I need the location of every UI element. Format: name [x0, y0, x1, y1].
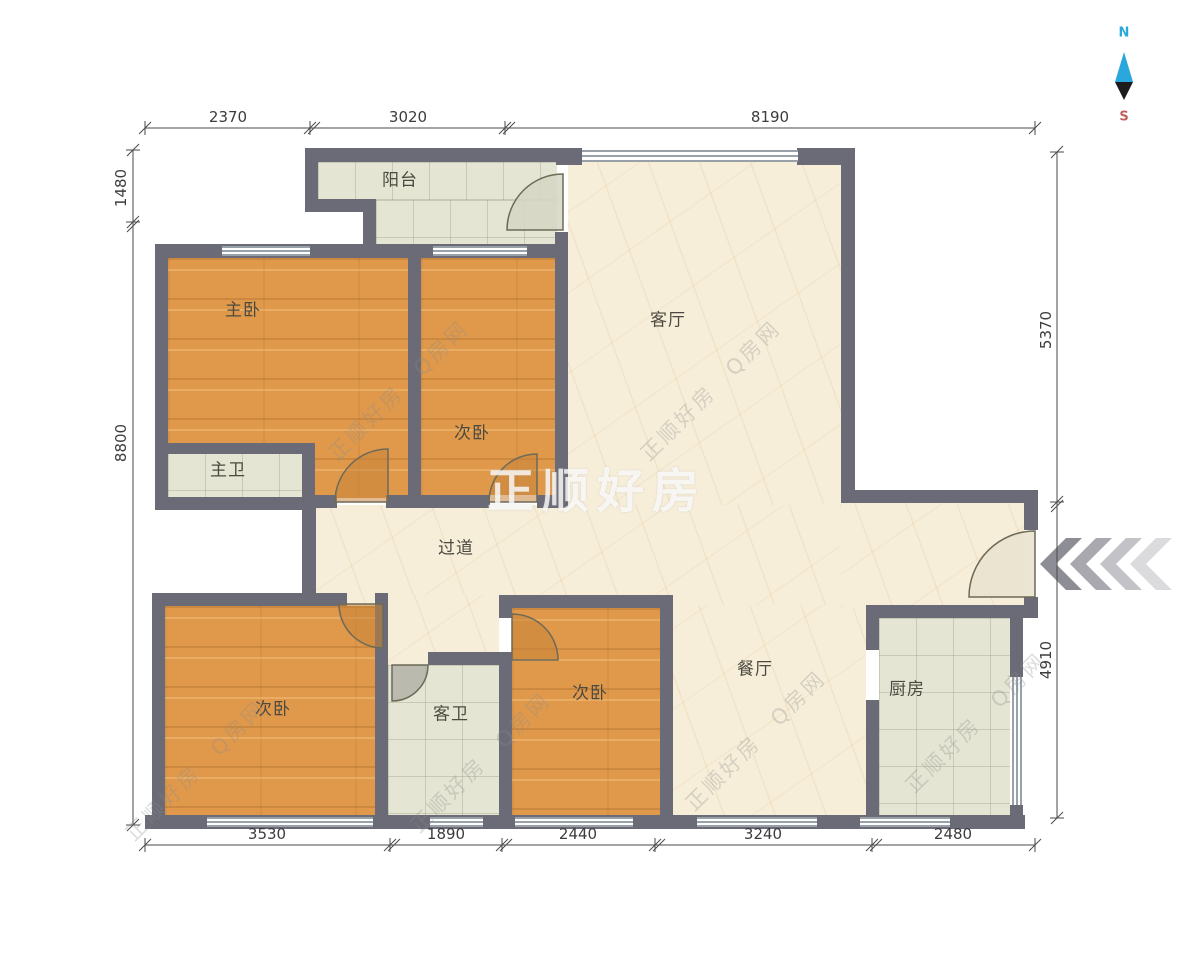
room-label-bedroom-top: 次卧 [454, 419, 490, 444]
door-arcs [335, 174, 1035, 701]
compass-north-label: N [1119, 26, 1130, 41]
dim-bottom-3: 2440 [559, 825, 597, 843]
dim-top-1: 2370 [209, 108, 247, 126]
dim-right-1: 5370 [1037, 311, 1055, 349]
door-arc-guest-bath [392, 665, 428, 701]
room-label-bedroom-mid: 次卧 [572, 679, 608, 704]
compass-south-label: S [1119, 110, 1128, 125]
dim-bottom-1: 3530 [248, 825, 286, 843]
dim-left-2: 8800 [112, 424, 130, 462]
room-label-dining: 餐厅 [737, 655, 773, 680]
room-label-kitchen: 厨房 [889, 675, 925, 700]
room-label-living: 客厅 [650, 306, 686, 331]
compass-arrow [1115, 52, 1133, 100]
door-arc-bedroom-left [339, 604, 383, 648]
room-label-balcony: 阳台 [382, 166, 418, 191]
door-arc-bedroom-mid [512, 614, 558, 660]
dim-bottom-5: 2480 [934, 825, 972, 843]
dim-left-1: 1480 [112, 169, 130, 207]
room-label-master-bedroom: 主卧 [225, 296, 261, 321]
dim-top-3: 8190 [751, 108, 789, 126]
entry-chevrons [1040, 538, 1172, 590]
room-label-hallway: 过道 [438, 534, 474, 559]
room-label-master-bath: 主卫 [210, 456, 246, 481]
room-label-guest-bath: 客卫 [433, 700, 469, 725]
dim-bottom-4: 3240 [744, 825, 782, 843]
watermark-brand: 正顺好房 [487, 453, 707, 522]
dim-top-2: 3020 [389, 108, 427, 126]
floor-plan: 阳台 主卧 次卧 客厅 主卫 过道 次卧 客卫 次卧 餐厅 厨房 2370 30… [0, 0, 1199, 971]
door-arc-entry [969, 531, 1035, 597]
door-arc-balcony [507, 174, 563, 230]
